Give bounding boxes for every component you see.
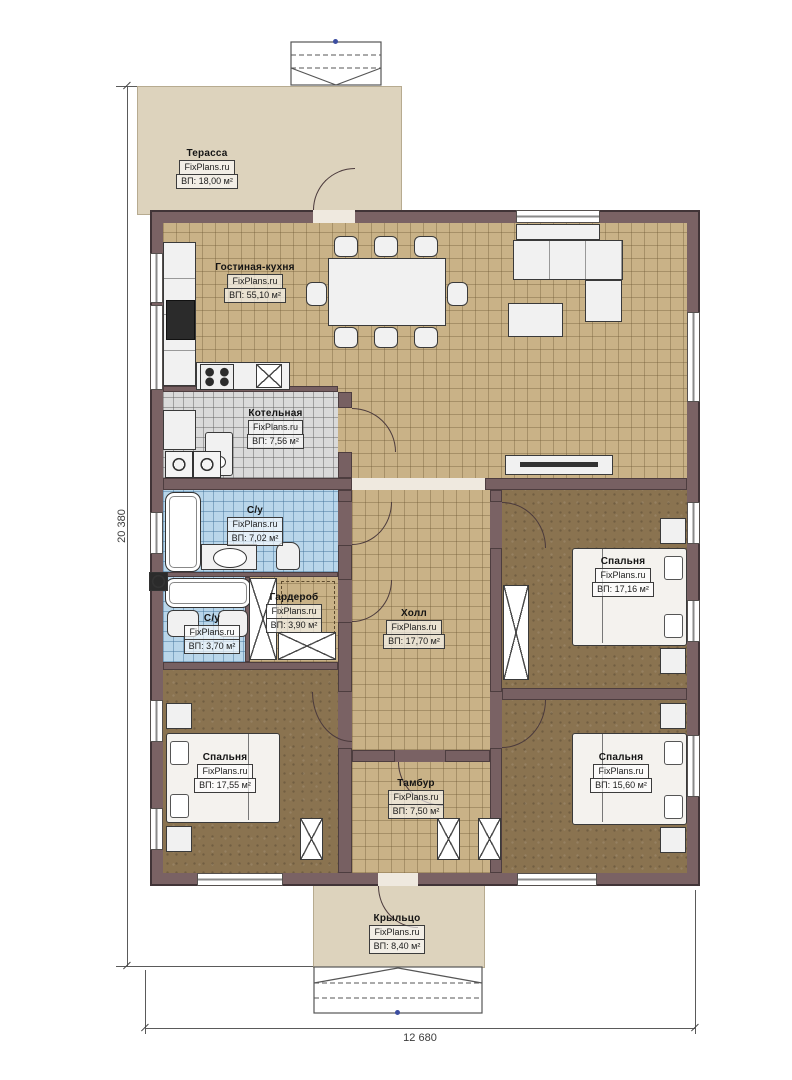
door-threshold [313, 210, 355, 223]
nightstand [660, 827, 686, 853]
roof-gable-top [290, 41, 382, 86]
nightstand [660, 703, 686, 729]
window [150, 305, 163, 390]
wall-segment [338, 452, 352, 478]
window [516, 210, 600, 223]
extension-line-bottom [116, 966, 316, 967]
window [150, 253, 163, 303]
room-area: ВП: 7,50 м² [388, 804, 445, 819]
kitchen-sink [166, 300, 195, 340]
sideboard [516, 224, 600, 240]
room-site: FixPlans.ru [266, 604, 321, 619]
room-name: Котельная [248, 408, 302, 419]
boiler-counter [163, 410, 196, 450]
room-name: Терасса [186, 148, 227, 159]
wall-segment [445, 750, 490, 762]
room-label-bathroom-2: С/у FixPlans.ru ВП: 3,70 м² [172, 613, 252, 654]
wall-segment [502, 688, 687, 700]
room-area: ВП: 18,00 м² [176, 174, 238, 189]
room-name: Спальня [601, 556, 646, 567]
chair [374, 327, 398, 348]
window [517, 873, 597, 886]
wall-segment [163, 478, 352, 490]
bathtub [165, 492, 201, 572]
wall-segment [490, 548, 502, 692]
room-site: FixPlans.ru [227, 517, 282, 532]
hob-marker-icon [256, 364, 282, 388]
room-label-living-kitchen: Гостиная-кухня FixPlans.ru ВП: 55,10 м² [200, 262, 310, 303]
tv-icon [520, 462, 598, 467]
room-name: Гардероб [270, 592, 319, 603]
wardrobe-cabinet [503, 585, 529, 680]
wall-segment [338, 490, 352, 502]
window [687, 600, 700, 642]
room-label-porch: Крыльцо FixPlans.ru ВП: 8,40 м² [352, 913, 442, 954]
wall-segment [352, 750, 395, 762]
dimension-vertical-label: 20 380 [116, 496, 128, 556]
room-label-bedroom-right-bottom: Спальня FixPlans.ru ВП: 15,60 м² [576, 752, 666, 793]
sofa [513, 240, 623, 280]
room-area: ВП: 17,55 м² [194, 778, 256, 793]
wall-segment [163, 572, 338, 577]
dimension-horizontal-label: 12 680 [390, 1032, 450, 1044]
room-label-hall: Холл FixPlans.ru ВП: 17,70 м² [370, 608, 458, 649]
room-area: ВП: 8,40 м² [369, 939, 426, 954]
room-area: ВП: 55,10 м² [224, 288, 286, 303]
wall-segment [490, 490, 502, 502]
window [687, 312, 700, 402]
room-label-bathroom-1: С/у FixPlans.ru ВП: 7,02 м² [210, 505, 300, 546]
chair [414, 236, 438, 257]
window [150, 808, 163, 850]
extension-line-right [695, 890, 696, 1034]
nightstand [660, 648, 686, 674]
chair [374, 236, 398, 257]
sink [213, 548, 247, 568]
room-site: FixPlans.ru [388, 790, 443, 805]
chair [334, 236, 358, 257]
floor-plan: 20 380 12 680 [0, 0, 792, 1080]
room-area: ВП: 7,02 м² [227, 531, 284, 546]
nightstand [166, 703, 192, 729]
chair [447, 282, 468, 306]
pillow [664, 795, 683, 819]
room-label-terrace: Терасса FixPlans.ru ВП: 18,00 м² [157, 148, 257, 189]
survey-point-icon [333, 39, 338, 44]
window [197, 873, 283, 886]
room-area: ВП: 3,90 м² [266, 618, 323, 633]
window [687, 735, 700, 797]
room-label-bedroom-right-top: Спальня FixPlans.ru ВП: 17,16 м² [578, 556, 668, 597]
wall-segment [338, 392, 352, 408]
room-site: FixPlans.ru [593, 764, 648, 779]
room-site: FixPlans.ru [227, 274, 282, 289]
room-name: С/у [247, 505, 263, 516]
room-site: FixPlans.ru [184, 625, 239, 640]
wall-segment [338, 545, 352, 580]
pillow [664, 741, 683, 765]
wall-segment [338, 622, 352, 692]
passage-threshold [352, 478, 485, 490]
room-site: FixPlans.ru [595, 568, 650, 583]
stove-icon [200, 364, 234, 390]
room-site: FixPlans.ru [197, 764, 252, 779]
room-name: Холл [401, 608, 427, 619]
room-name: Гостиная-кухня [215, 262, 294, 273]
wall-segment [485, 478, 687, 490]
room-label-bedroom-left: Спальня FixPlans.ru ВП: 17,55 м² [180, 752, 270, 793]
closet-cabinet [478, 818, 501, 860]
room-site: FixPlans.ru [386, 620, 441, 635]
sofa-chaise [585, 280, 622, 322]
room-name: Спальня [203, 752, 248, 763]
room-area: ВП: 15,60 м² [590, 778, 652, 793]
chair [334, 327, 358, 348]
nightstand [660, 518, 686, 544]
window [687, 502, 700, 544]
wardrobe-cabinet [278, 632, 336, 660]
room-label-tambour: Тамбур FixPlans.ru ВП: 7,50 м² [374, 778, 458, 819]
roof-gable-bottom [313, 966, 483, 1014]
room-name: Крыльцо [374, 913, 421, 924]
survey-point-icon [395, 1010, 400, 1015]
window [150, 700, 163, 742]
room-site: FixPlans.ru [179, 160, 234, 175]
room-site: FixPlans.ru [369, 925, 424, 940]
room-label-boiler: Котельная FixPlans.ru ВП: 7,56 м² [228, 408, 323, 449]
room-name: С/у [204, 613, 220, 624]
washing-machine-icon [193, 451, 221, 478]
room-name: Спальня [599, 752, 644, 763]
pillow [664, 614, 683, 638]
room-area: ВП: 17,16 м² [592, 582, 654, 597]
room-site: FixPlans.ru [248, 420, 303, 435]
room-label-wardrobe: Гардероб FixPlans.ru ВП: 3,90 м² [250, 592, 338, 633]
nightstand [166, 826, 192, 852]
wall-segment [163, 662, 338, 670]
room-area: ВП: 7,56 м² [247, 434, 304, 449]
washing-machine-icon [165, 451, 193, 478]
dimension-line-horizontal [145, 1028, 695, 1029]
bathtub [165, 578, 251, 608]
room-area: ВП: 17,70 м² [383, 634, 445, 649]
water-meter-icon [149, 572, 168, 591]
closet-cabinet [300, 818, 323, 860]
dining-table [328, 258, 446, 326]
toilet [276, 542, 300, 570]
door-threshold [378, 873, 418, 886]
closet-cabinet [437, 818, 460, 860]
room-area: ВП: 3,70 м² [184, 639, 241, 654]
room-name: Тамбур [397, 778, 434, 789]
chair [414, 327, 438, 348]
window [150, 512, 163, 554]
coffee-table [508, 303, 563, 337]
pillow [170, 794, 189, 818]
wall-segment [338, 748, 352, 873]
